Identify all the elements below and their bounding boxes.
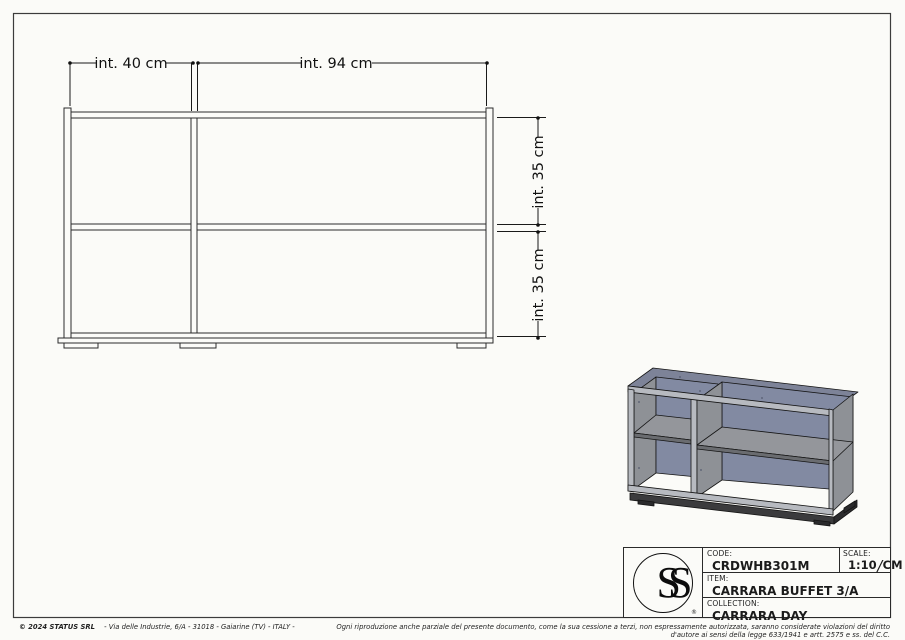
front-foot-left: [64, 343, 98, 348]
dim-label-height-lower: int. 35 cm: [531, 248, 547, 321]
scale-unit: CM: [883, 558, 903, 572]
dimension-labels: int. 40 cm int. 94 cm int. 35 cm int. 35…: [94, 56, 547, 322]
technical-drawing-canvas: int. 40 cm int. 94 cm int. 35 cm int. 35…: [0, 0, 905, 640]
title-block-row-code: CODE: CRDWHB301M SCALE: 1:10/CM: [703, 548, 890, 573]
collection-label: COLLECTION:: [707, 599, 890, 608]
footer-legal-notice: Ogni riproduzione anche parziale del pre…: [320, 623, 890, 639]
front-base: [58, 338, 493, 343]
front-left-panel: [64, 108, 71, 338]
iso-left-stile: [628, 389, 634, 492]
front-bottom-panel: [71, 333, 486, 338]
iso-view: [628, 368, 858, 526]
item-value: CARRARA BUFFET 3/A: [707, 584, 890, 598]
front-right-panel: [486, 108, 493, 338]
code-label: CODE:: [707, 549, 839, 558]
title-block: SS ® CODE: CRDWHB301M SCALE: 1:10/CM ITE…: [623, 547, 891, 618]
iso-right-stile: [829, 409, 833, 515]
sheet-border: [14, 14, 891, 618]
dimension-end-dots: [68, 61, 540, 340]
brand-logo: SS: [633, 553, 693, 613]
brand-logo-text: SS: [657, 561, 680, 605]
scale-slash: /: [877, 561, 882, 572]
drawing-sheet: int. 40 cm int. 94 cm int. 35 cm int. 35…: [0, 0, 905, 640]
code-value: CRDWHB301M: [707, 559, 839, 573]
front-top-panel: [71, 112, 486, 118]
scale-ratio: 1:10: [848, 558, 877, 572]
scale-cell: SCALE: 1:10/CM: [839, 548, 890, 572]
title-block-row-collection: COLLECTION: CARRARA DAY: [703, 598, 890, 623]
front-divider: [191, 118, 197, 333]
dimensions: [68, 61, 546, 340]
title-block-row-item: ITEM: CARRARA BUFFET 3/A: [703, 573, 890, 598]
front-shelf-left: [71, 224, 191, 230]
sheet-footer: © 2024 STATUS SRL - Via delle Industrie,…: [0, 621, 905, 639]
footer-company-info: © 2024 STATUS SRL - Via delle Industrie,…: [19, 623, 295, 631]
dim-label-height-upper: int. 35 cm: [531, 135, 547, 208]
code-cell: CODE: CRDWHB301M: [703, 548, 839, 572]
dim-label-width-right: int. 94 cm: [299, 56, 372, 72]
iso-divider-front: [691, 399, 697, 497]
registered-trademark-mark: ®: [691, 609, 697, 616]
logo-cell: SS ®: [624, 548, 703, 617]
footer-address: - Via delle Industrie, 6/A - 31018 - Gai…: [104, 623, 295, 631]
title-block-fields: CODE: CRDWHB301M SCALE: 1:10/CM ITEM: CA…: [703, 548, 890, 617]
footer-copyright: © 2024 STATUS SRL: [19, 623, 95, 631]
front-shelf-right: [197, 224, 486, 230]
item-label: ITEM:: [707, 574, 890, 583]
front-view: [58, 108, 493, 348]
scale-value: 1:10/CM: [843, 558, 888, 572]
front-foot-right: [457, 343, 486, 348]
dim-label-width-left: int. 40 cm: [94, 56, 167, 72]
front-foot-middle: [180, 343, 216, 348]
